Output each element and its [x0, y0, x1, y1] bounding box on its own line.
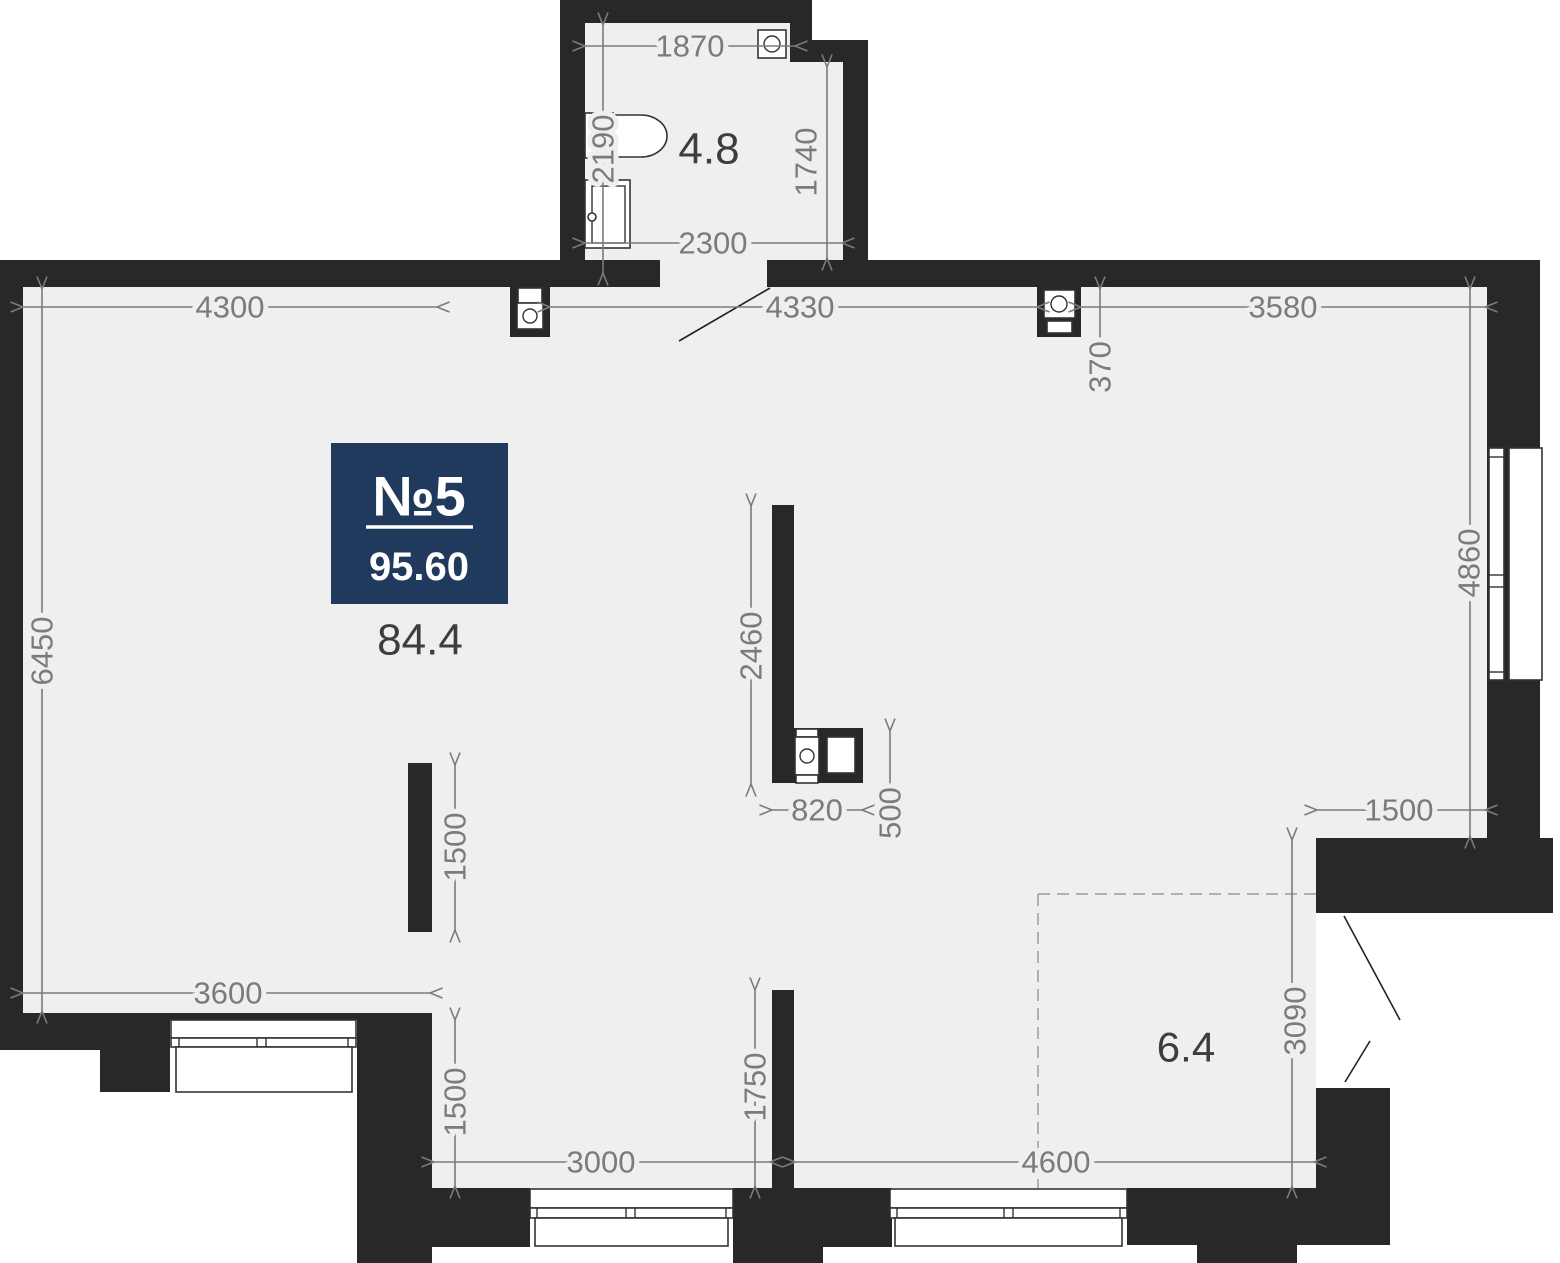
bottom-left-window	[171, 1020, 356, 1092]
vent-shaft-icon	[517, 288, 543, 329]
dim-bottom-left-width: 3600	[194, 976, 263, 1011]
dim-bath-bottom-width: 2300	[679, 226, 748, 261]
bathroom-area-label: 4.8	[678, 125, 739, 174]
floor-plan-svg: 1870 2190 1740 2300 4300 4330 3580 370 6…	[0, 0, 1560, 1263]
main-room-area-label: 84.4	[377, 616, 463, 665]
dim-right-window-height: 4860	[1452, 529, 1487, 598]
vent-shaft-icon	[758, 30, 786, 58]
dim-closet-wall: 1500	[438, 813, 473, 882]
dim-balcony-height: 3090	[1278, 987, 1313, 1056]
dim-kitchen-gap: 500	[873, 787, 908, 839]
dim-bath-right-height: 1740	[789, 128, 824, 197]
dim-stub-height: 1750	[738, 1053, 773, 1122]
dim-right-offset: 1500	[1365, 793, 1434, 828]
dim-recess-height: 1500	[438, 1068, 473, 1137]
dim-left-height: 6450	[25, 617, 60, 686]
dim-top-middle: 4330	[766, 290, 835, 325]
dim-bottom-middle-width: 3000	[567, 1145, 636, 1180]
floor-plan-canvas: 1870 2190 1740 2300 4300 4330 3580 370 6…	[0, 0, 1560, 1263]
bottom-wall-stub	[772, 990, 794, 1188]
shower-icon	[585, 180, 630, 248]
dim-kitchen-wall-height: 2460	[734, 612, 769, 681]
vent-shaft-icon	[1044, 290, 1075, 333]
balcony-area-label: 6.4	[1157, 1024, 1215, 1071]
dim-top-left: 4300	[196, 290, 265, 325]
balcony-door-swing	[1344, 916, 1400, 1082]
bottom-window-right	[890, 1189, 1127, 1246]
right-wall-window	[1489, 448, 1542, 680]
dim-top-right: 3580	[1249, 290, 1318, 325]
unit-number-label: №5	[372, 465, 466, 528]
dim-bath-top-width: 1870	[656, 29, 725, 64]
dim-bath-left-height: 2190	[586, 115, 621, 184]
dim-kitchen-wall-width: 820	[791, 793, 843, 828]
bottom-window-left	[530, 1189, 733, 1246]
unit-total-area-label: 95.60	[369, 545, 469, 589]
entry-door-gap-floor	[655, 260, 769, 288]
dim-bottom-right-width: 4600	[1022, 1145, 1091, 1180]
unit-badge[interactable]: №5 95.60	[331, 443, 508, 604]
closet-wall-stub	[408, 763, 432, 932]
dim-vent-depth: 370	[1083, 341, 1118, 393]
